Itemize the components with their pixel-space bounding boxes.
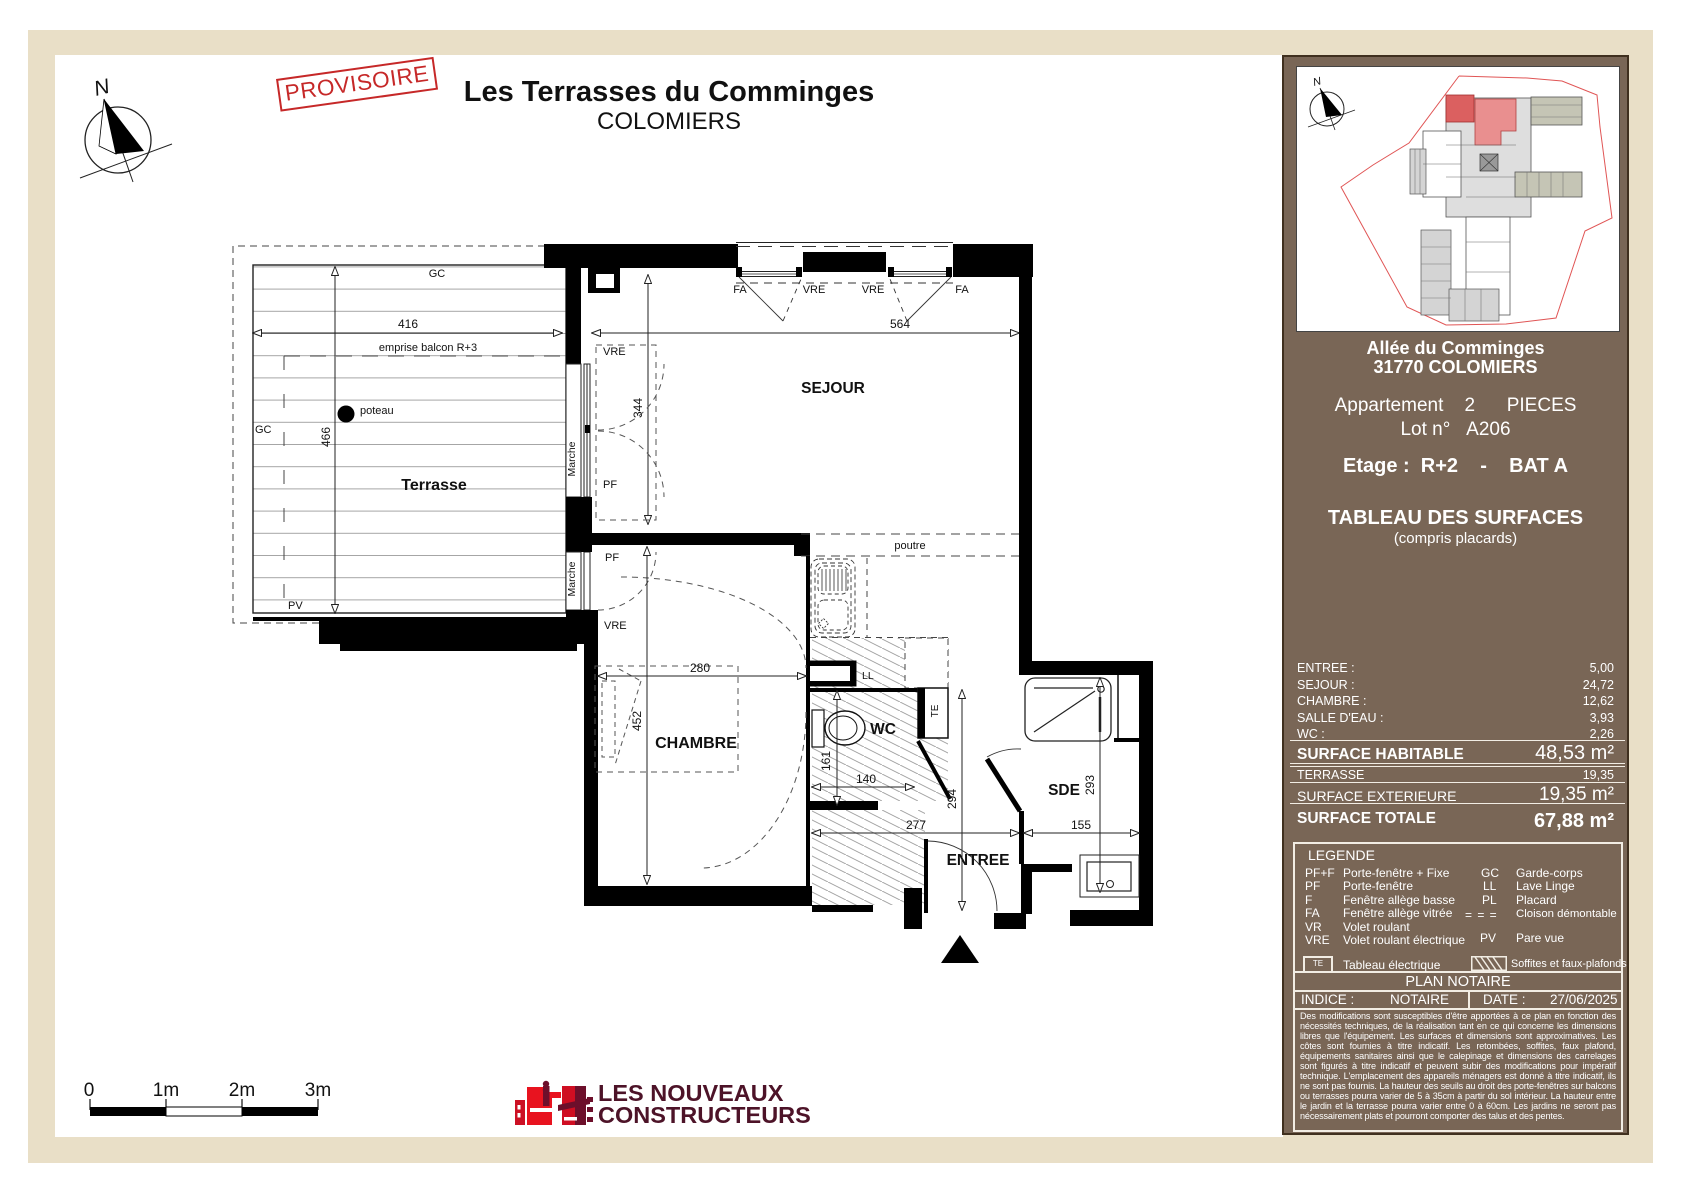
svg-text:Marche: Marche <box>566 441 578 476</box>
svg-text:294: 294 <box>945 789 959 809</box>
svg-text:155: 155 <box>1071 818 1091 832</box>
svg-text:CONSTRUCTEURS: CONSTRUCTEURS <box>598 1102 811 1128</box>
svg-text:N: N <box>1312 75 1323 89</box>
svg-text:277: 277 <box>906 818 926 832</box>
svg-text:344: 344 <box>631 398 645 418</box>
svg-text:SEJOUR: SEJOUR <box>801 380 865 397</box>
svg-text:0: 0 <box>84 1080 95 1101</box>
svg-text:SDE: SDE <box>1048 782 1080 799</box>
svg-text:3m: 3m <box>305 1080 331 1101</box>
svg-text:452: 452 <box>630 711 644 731</box>
svg-text:VRE: VRE <box>862 284 885 296</box>
svg-text:VRE: VRE <box>803 284 826 296</box>
svg-text:161: 161 <box>819 751 833 771</box>
svg-text:PV: PV <box>288 600 303 612</box>
svg-text:280: 280 <box>690 661 710 675</box>
svg-text:poutre: poutre <box>894 540 925 552</box>
svg-text:PF: PF <box>605 552 619 564</box>
svg-text:FA: FA <box>955 284 969 296</box>
svg-text:WC: WC <box>870 721 896 738</box>
svg-text:ENTREE: ENTREE <box>947 852 1010 869</box>
svg-text:GC: GC <box>255 424 272 436</box>
svg-text:PF: PF <box>603 479 617 491</box>
svg-text:LL: LL <box>862 670 874 682</box>
svg-text:416: 416 <box>398 317 418 331</box>
svg-text:CHAMBRE: CHAMBRE <box>655 735 737 752</box>
svg-text:FA: FA <box>733 284 747 296</box>
svg-text:TE: TE <box>930 704 941 717</box>
svg-text:1m: 1m <box>153 1080 179 1101</box>
svg-text:Marche: Marche <box>566 561 578 596</box>
svg-text:564: 564 <box>890 317 910 331</box>
svg-text:N: N <box>92 75 113 101</box>
svg-text:2m: 2m <box>229 1080 255 1101</box>
svg-text:VRE: VRE <box>603 346 626 358</box>
svg-text:VRE: VRE <box>604 620 627 632</box>
svg-text:emprise balcon R+3: emprise balcon R+3 <box>379 342 477 354</box>
svg-text:GC: GC <box>429 268 446 280</box>
svg-text:Terrasse: Terrasse <box>401 477 467 494</box>
svg-text:poteau: poteau <box>360 405 394 417</box>
svg-text:293: 293 <box>1083 775 1097 795</box>
svg-text:466: 466 <box>319 427 333 447</box>
svg-text:140: 140 <box>856 772 876 786</box>
